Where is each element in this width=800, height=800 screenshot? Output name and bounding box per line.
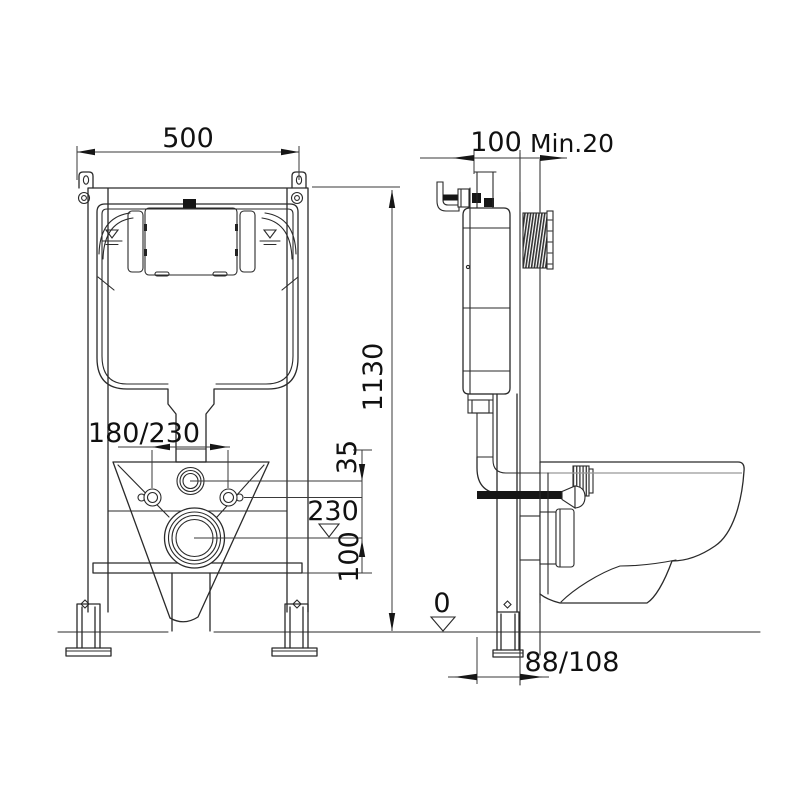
dim-bolt-spacing-label: 180/230 [88,418,200,449]
flush-bend [477,413,593,496]
side-column-right [240,211,255,272]
dim-floor-datum: 0 [431,588,455,631]
technical-drawing: 500 1130 180/230 35 230 100 [0,0,800,800]
screw-right [292,193,303,204]
dim-outlet-height-label: 230 [307,496,359,527]
water-level-icon [102,230,280,245]
dimensions: 500 1130 180/230 35 230 100 [77,123,620,684]
flush-plate-box [523,211,553,269]
dim-wall-min-label: Min.20 [530,129,614,158]
access-clip [183,199,196,208]
dim-frame-height-label: 1130 [358,343,389,412]
access-cover [145,208,237,275]
mounting-tab-left [79,172,93,188]
level-triangle-0 [431,617,455,631]
drain-connector [520,509,574,567]
foot-right [272,600,317,656]
dim-depth-wall: 100 Min.20 [420,127,614,192]
side-frame [463,172,517,612]
bolt-hole-left [138,489,161,506]
dim-floor-label: 0 [433,588,450,619]
front-view-frame [66,172,362,656]
dim-flush-offset-label: 35 [332,440,363,474]
fixing-stud [477,486,585,508]
dim-depth-label: 100 [470,127,522,158]
dim-outlet-drop-label: 100 [334,531,365,583]
dim-frame-width-label: 500 [162,123,214,154]
technical-drawing-page: 500 1130 180/230 35 230 100 [0,0,800,800]
lower-crossbar [93,511,362,631]
side-view [437,153,744,685]
dim-outlet-distance-label: 88/108 [525,647,620,678]
side-column-left [128,211,143,272]
dim-bolt-spacing: 180/230 [88,418,230,488]
dim-frame-width: 500 [77,123,299,180]
wall-anchor [437,182,494,211]
dim-outlet-distance: 88/108 [448,637,620,684]
